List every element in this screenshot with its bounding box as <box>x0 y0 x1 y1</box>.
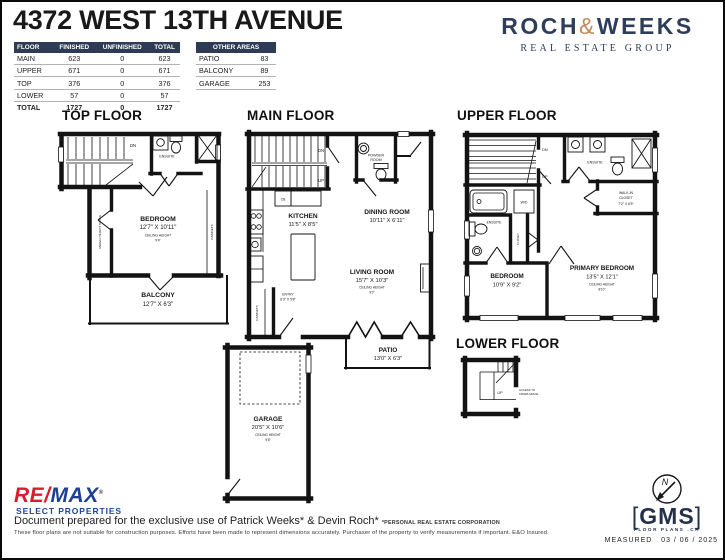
stairs-up-label: UP <box>318 178 324 183</box>
garage-walls <box>225 345 311 501</box>
wic-dim: 7'2" X 6'5" <box>618 202 634 206</box>
remax-logo: RE/MAX® <box>14 484 104 508</box>
measured-label: MEASURED <box>605 537 653 544</box>
cabinets-label: CABINETS <box>255 305 259 320</box>
room-dim: 11'5" X 8'5" <box>288 222 317 228</box>
gms-tagline: FLOOR PLANS .CA <box>612 527 722 532</box>
remax-re: RE <box>14 484 44 507</box>
ensuite-label: ENSUITE <box>487 221 502 225</box>
room-name: GARAGE <box>254 416 284 423</box>
window <box>59 147 64 162</box>
stairs-up-label: UP <box>497 391 503 395</box>
stairs-up-label: UP <box>542 174 548 179</box>
upper-floor-label: UPPER FLOOR <box>457 108 668 123</box>
table-row: UPPER6710671 <box>14 64 180 76</box>
window <box>565 316 600 321</box>
entry-dim: 6'3" X 5'8" <box>280 298 296 302</box>
main-floor-label: MAIN FLOOR <box>247 108 443 123</box>
stairs <box>252 136 327 187</box>
closet-label: CLOSET <box>516 233 520 245</box>
remax-max: MAX <box>51 484 99 507</box>
garage-door-swing <box>228 479 241 495</box>
col-floor: FLOOR <box>14 42 53 53</box>
island <box>291 234 315 280</box>
cabinets-label: CABINETS <box>210 224 214 239</box>
room-dim: 12'7" X 6'3" <box>143 302 174 308</box>
main-floor-section: MAIN FLOOR <box>215 108 443 510</box>
top-floor-label: TOP FLOOR <box>62 108 236 123</box>
table-row: PATIO83 <box>196 53 276 65</box>
sink-icon <box>358 143 369 154</box>
stairs-dn-label: DN <box>318 148 324 153</box>
page-title: 4372 WEST 13TH AVENUE <box>13 5 343 36</box>
window <box>480 316 518 321</box>
room-name: PATIO <box>379 347 398 354</box>
ceiling-label: CEILING HEIGHT <box>145 234 172 238</box>
interior-walls <box>247 134 397 337</box>
table-header-row: OTHER AREAS <box>196 42 276 53</box>
prepared-note: *PERSONAL REAL ESTATE CORPORATION <box>382 520 500 526</box>
room-name: DINING ROOM <box>364 209 410 216</box>
wic-label: WALK-IN <box>619 191 634 195</box>
window <box>613 316 642 321</box>
stairs <box>66 137 133 185</box>
bathtub-icon <box>470 190 507 213</box>
sink-icon <box>590 137 605 152</box>
outer-walls <box>465 133 657 320</box>
room-dim: 13'0" X 6'3" <box>374 356 403 362</box>
table-row: MAIN6230623 <box>14 53 180 65</box>
room-dim: 15'7" X 10'3" <box>356 278 389 284</box>
lower-floor-plan: UP ACCESS TO CRAWLSPACE <box>450 352 580 424</box>
prepared-line: Document prepared for the exclusive use … <box>14 515 500 527</box>
ensuite-label: ENSUITE <box>159 155 175 159</box>
balcony-walls <box>89 276 228 324</box>
main-floor-plan: DN UP POWDER ROOM CB KITCHEN 11'5" X 8'5… <box>215 126 440 508</box>
room-name: LIVING ROOM <box>350 269 395 276</box>
window <box>653 148 658 172</box>
col-unfinished: UNFINISHED <box>95 42 149 53</box>
ceiling-label: CEILING HEIGHT <box>589 283 615 287</box>
top-floor-section: TOP FLOOR DN ENSUITE BEDROOM 12'7" X 10'… <box>56 108 236 334</box>
room-name: BEDROOM <box>140 216 176 223</box>
room-name: BALCONY <box>141 292 175 299</box>
ceiling-label: CEILING HEIGHT <box>255 433 281 437</box>
door-swings <box>279 142 421 337</box>
other-areas-table: OTHER AREAS PATIO83 BALCONY89 GARAGE253 <box>196 42 276 90</box>
upper-floor-section: UPPER FLOOR <box>450 108 668 330</box>
window <box>398 132 409 137</box>
other-areas-title: OTHER AREAS <box>196 42 276 53</box>
compass-n-label: N <box>662 477 669 487</box>
sink-icon <box>153 136 168 150</box>
ceiling-value: 8'10" <box>598 288 605 292</box>
brand-name1: ROCH <box>501 13 579 39</box>
powder-label: POWDER <box>368 154 385 158</box>
table-row: BALCONY89 <box>196 64 276 76</box>
brand-name2: WEEKS <box>597 13 694 39</box>
toilet-icon <box>611 157 624 163</box>
under-height-label: UNDER HEIGHT SPACE <box>98 215 102 250</box>
entry-label: ENTRY <box>282 293 294 297</box>
floor-area-table: FLOOR FINISHED UNFINISHED TOTAL MAIN6230… <box>14 42 180 113</box>
prepared-text: Document prepared for the exclusive use … <box>14 515 379 527</box>
room-name: PRIMARY BEDROOM <box>570 265 634 272</box>
toilet-icon <box>374 164 388 169</box>
window <box>653 274 658 298</box>
room-name: BEDROOM <box>490 273 523 280</box>
window <box>465 276 470 296</box>
brand-ampersand: & <box>579 13 597 39</box>
table-row: TOP3760376 <box>14 77 180 89</box>
ceiling-value: 9'8" <box>265 438 270 442</box>
interior-walls <box>465 135 657 318</box>
powder-label: ROOM <box>370 158 381 162</box>
window <box>429 210 434 232</box>
washer-dryer-label: W/D <box>521 201 528 205</box>
lower-floor-label: LOWER FLOOR <box>456 336 585 351</box>
wic-label: CLOSET <box>619 196 633 200</box>
measured-date: MEASURED 03 / 06 / 2025 <box>560 537 718 544</box>
top-floor-plan: DN ENSUITE BEDROOM 12'7" X 10'11" CEILIN… <box>56 126 234 332</box>
table-row: LOWER57057 <box>14 89 180 101</box>
col-finished: FINISHED <box>53 42 95 53</box>
stairs-dn-label: DN <box>130 143 136 148</box>
ensuite-label: ENSUITE <box>587 161 603 165</box>
outer-walls <box>463 358 518 416</box>
kitchen-fixtures <box>249 189 321 282</box>
disclaimer-text: These floor plans are not suitable for c… <box>14 530 549 536</box>
lower-floor-section: LOWER FLOOR UP ACCESS TO CRAWLSPACE <box>450 330 585 428</box>
ceiling-value: 9'4" <box>155 239 161 243</box>
toilet-icon <box>170 136 182 142</box>
registered-mark: ® <box>99 490 104 496</box>
crawlspace-label: CRAWLSPACE <box>519 392 538 396</box>
gms-logo: [GMS] <box>612 503 722 530</box>
measured-value: 03 / 06 / 2025 <box>661 537 718 544</box>
brand-tagline: REAL ESTATE GROUP <box>490 43 705 54</box>
table-row: GARAGE253 <box>196 77 276 89</box>
stairs <box>466 140 536 183</box>
sink-icon <box>473 247 482 256</box>
room-dim: 10'11" X 6'11" <box>369 218 404 224</box>
ceiling-label: CEILING HEIGHT <box>359 286 385 290</box>
ceiling-value: 9'0" <box>369 291 374 295</box>
stairs-dn-label: DN <box>542 147 548 152</box>
room-dim: 12'7" X 10'11" <box>140 225 177 231</box>
table-header-row: FLOOR FINISHED UNFINISHED TOTAL <box>14 42 180 53</box>
overhead-door-outline <box>240 352 300 404</box>
brokerage-logo: ROCH&WEEKS REAL ESTATE GROUP <box>490 13 705 54</box>
sink-icon <box>568 137 583 152</box>
col-total: TOTAL <box>149 42 180 53</box>
room-name: KITCHEN <box>288 213 318 220</box>
upper-floor-plan: DN UP ENSUITE WALK-IN CLOSET 7'2" X 6'5"… <box>450 126 665 326</box>
cb-label: CB <box>281 198 286 202</box>
brand-wordmark: ROCH&WEEKS <box>490 13 705 40</box>
room-dim: 10'9" X 9'2" <box>493 283 522 289</box>
room-dim: 20'5" X 10'6" <box>252 425 285 431</box>
gms-name: GMS <box>639 503 694 529</box>
window <box>306 355 311 373</box>
room-dim: 13'5" X 12'1" <box>586 275 618 281</box>
pantry-box <box>291 191 321 206</box>
